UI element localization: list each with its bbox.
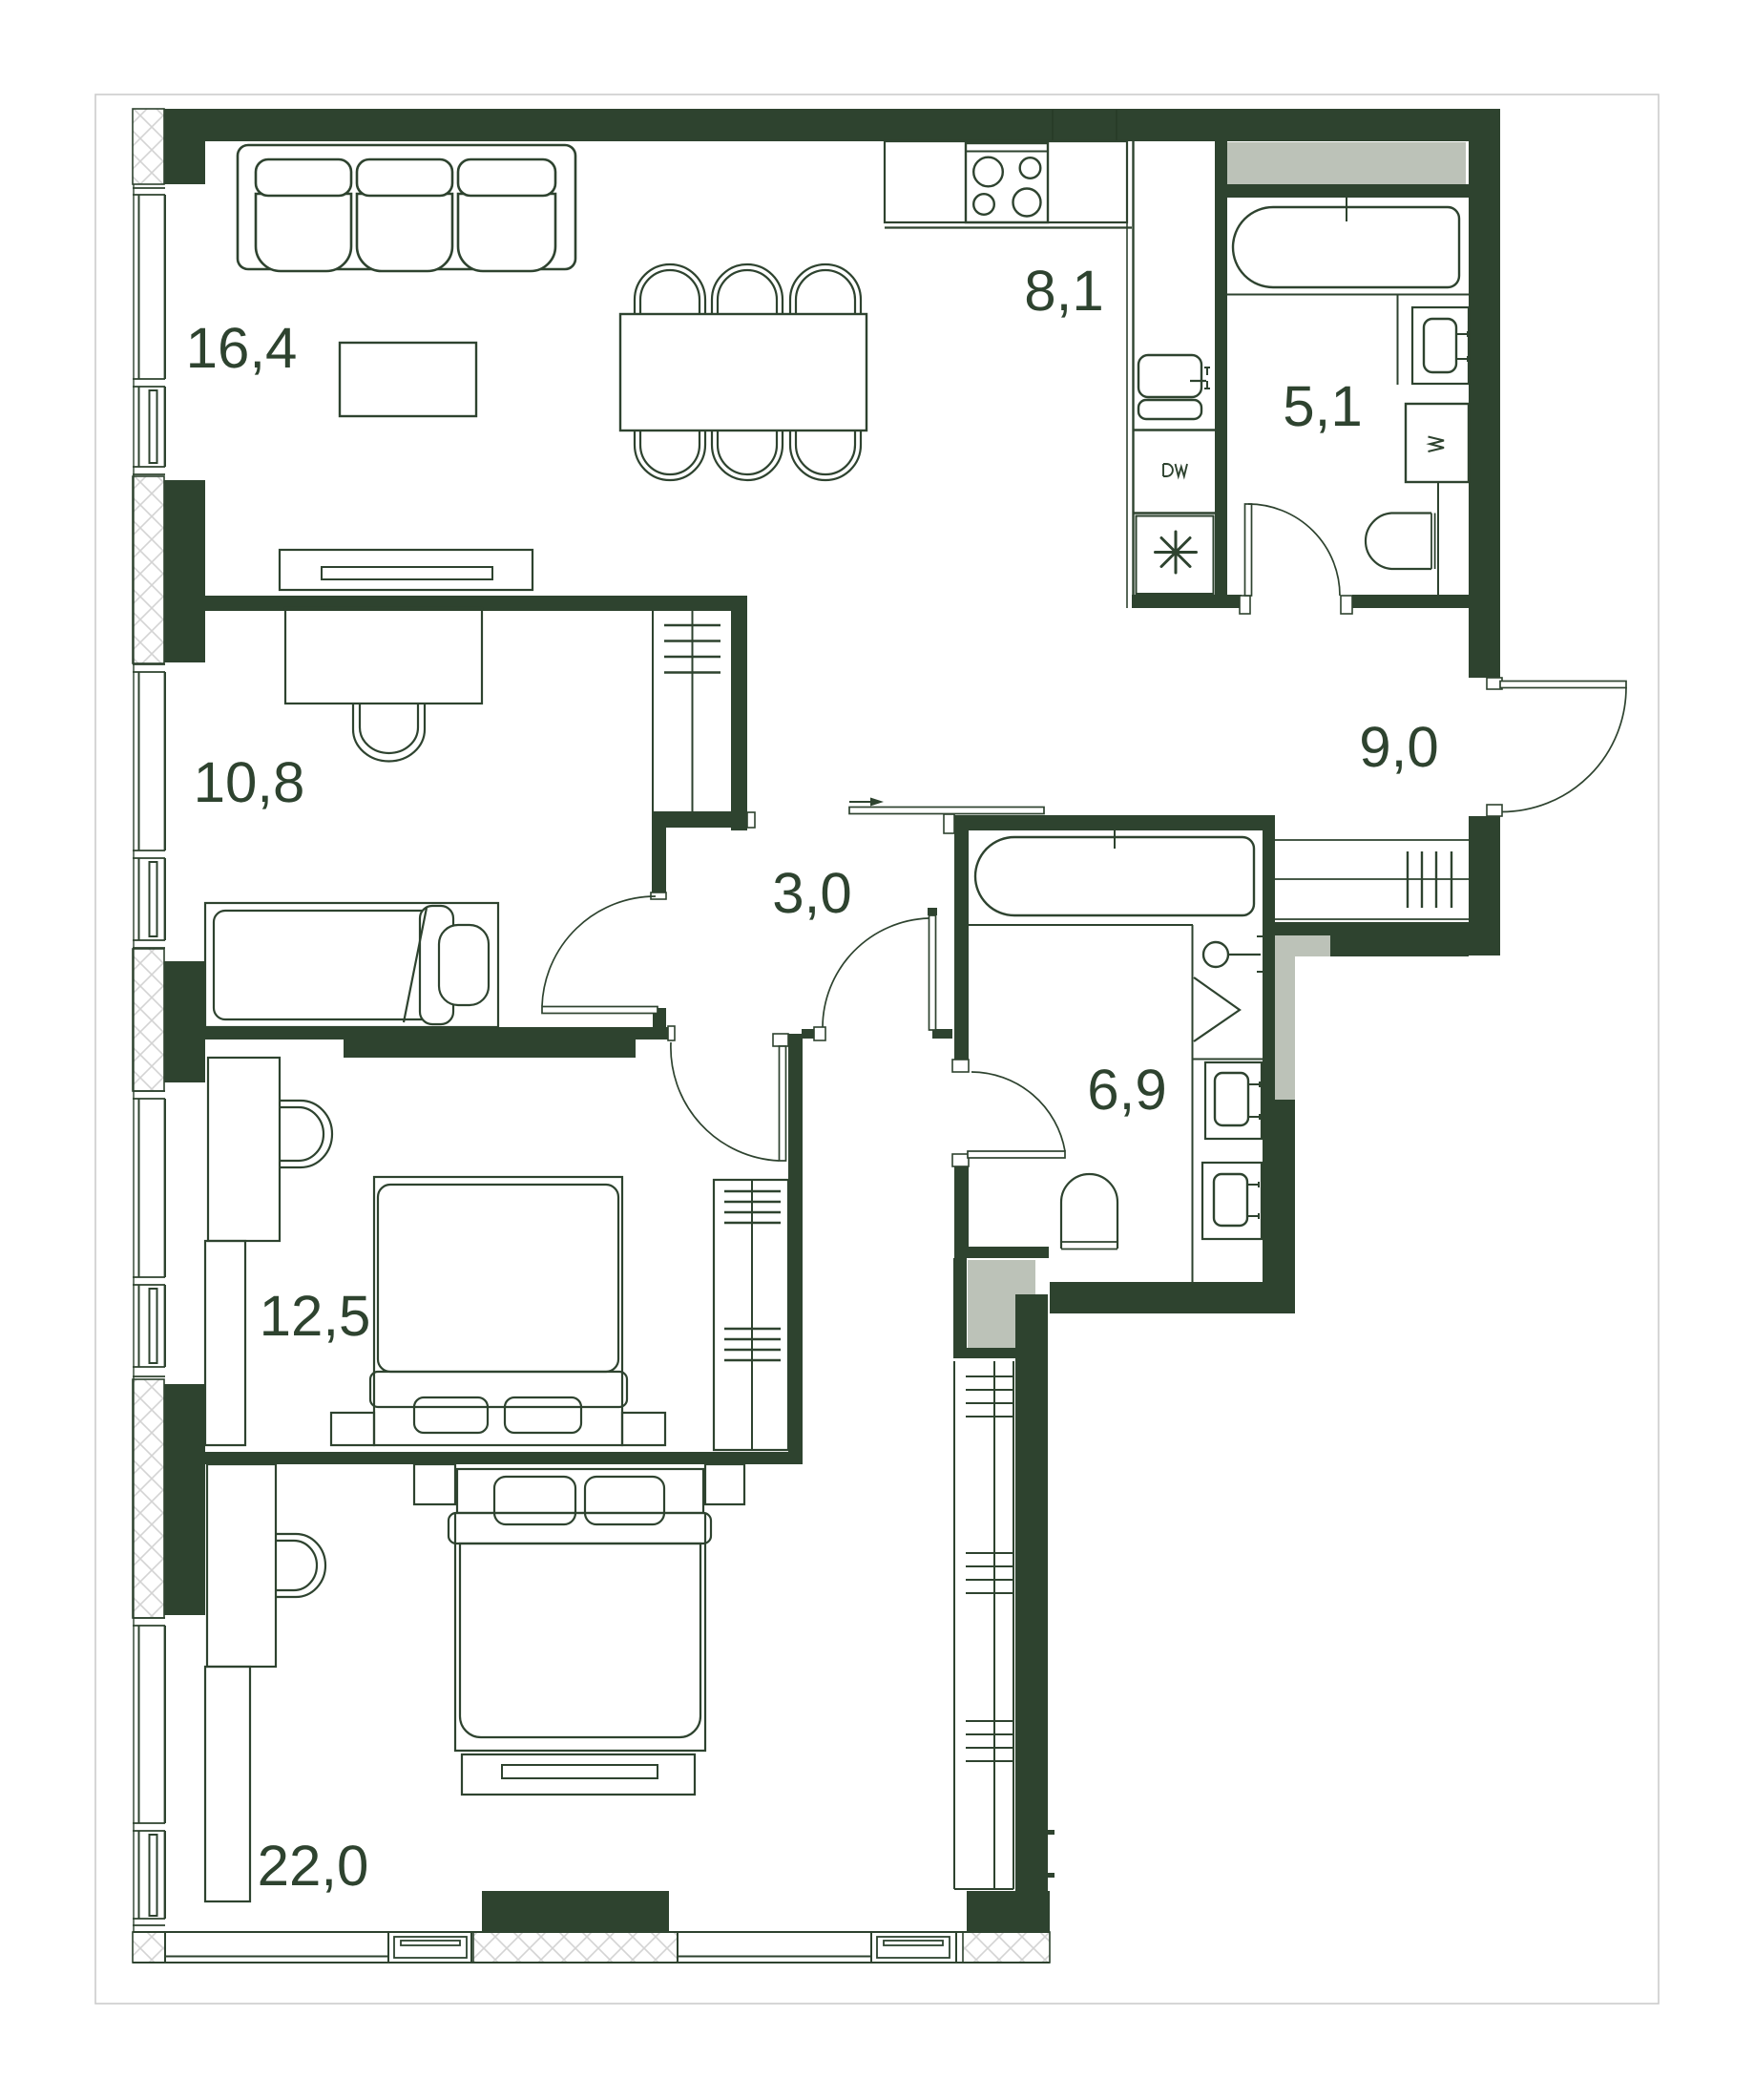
svg-text:9,0: 9,0 [1359,715,1438,779]
svg-text:5,1: 5,1 [1283,374,1362,438]
svg-text:10,8: 10,8 [194,750,305,814]
svg-text:3,0: 3,0 [772,861,851,925]
svg-text:6,9: 6,9 [1087,1058,1166,1122]
svg-text:16,4: 16,4 [186,316,298,380]
svg-text:8,1: 8,1 [1024,259,1103,323]
svg-text:12,5: 12,5 [260,1284,371,1348]
svg-text:22,0: 22,0 [258,1834,369,1898]
